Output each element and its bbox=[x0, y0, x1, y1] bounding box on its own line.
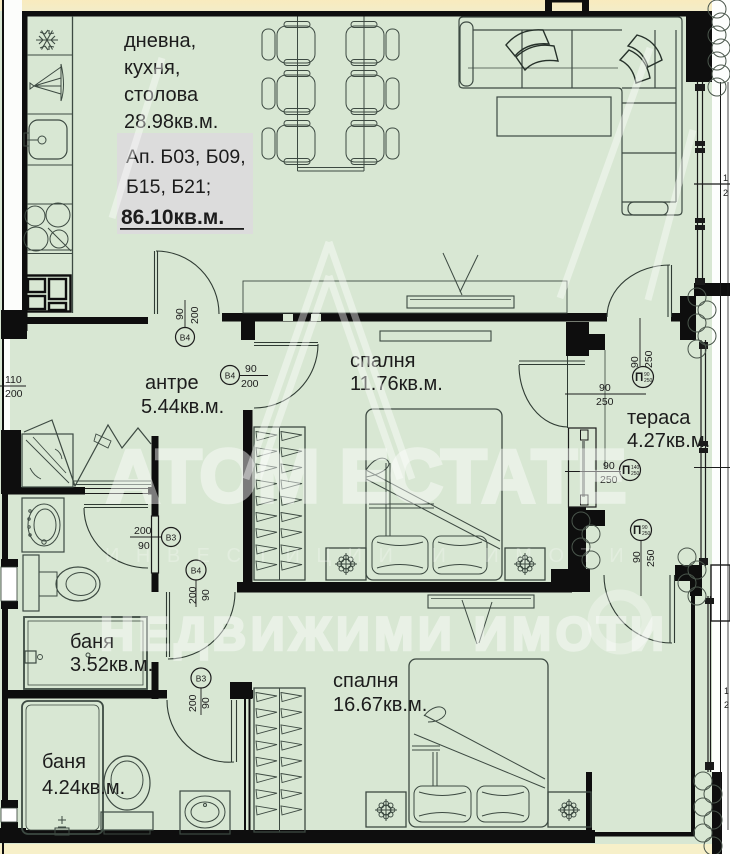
svg-text:86.10кв.м.: 86.10кв.м. bbox=[121, 206, 224, 229]
svg-text:столова: столова bbox=[124, 84, 199, 106]
svg-text:П: П bbox=[633, 525, 641, 537]
svg-text:Ап. Б03, Б09,: Ап. Б03, Б09, bbox=[126, 146, 246, 168]
svg-text:2: 2 bbox=[724, 700, 729, 710]
svg-text:2: 2 bbox=[723, 188, 728, 198]
svg-text:250: 250 bbox=[645, 549, 657, 567]
svg-text:200: 200 bbox=[241, 378, 259, 390]
svg-text:В4: В4 bbox=[191, 566, 202, 576]
svg-text:баня: баня bbox=[42, 751, 86, 773]
svg-text:200: 200 bbox=[5, 388, 23, 400]
svg-text:Б15, Б21;: Б15, Б21; bbox=[126, 176, 211, 198]
svg-text:90: 90 bbox=[245, 363, 257, 375]
svg-text:4.27кв.м.: 4.27кв.м. bbox=[627, 430, 710, 452]
svg-text:антре: антре bbox=[145, 372, 199, 394]
svg-text:200: 200 bbox=[187, 694, 199, 712]
svg-text:250: 250 bbox=[642, 531, 651, 537]
svg-text:90: 90 bbox=[599, 382, 611, 394]
svg-text:250: 250 bbox=[643, 350, 655, 368]
svg-text:200: 200 bbox=[134, 525, 152, 537]
svg-text:1: 1 bbox=[723, 173, 728, 183]
svg-text:16.67кв.м.: 16.67кв.м. bbox=[333, 694, 427, 716]
svg-text:В3: В3 bbox=[196, 674, 207, 684]
svg-text:дневна,: дневна, bbox=[124, 30, 196, 52]
svg-text:250: 250 bbox=[644, 378, 653, 384]
svg-text:4.24кв.м.: 4.24кв.м. bbox=[42, 777, 125, 799]
svg-text:110: 110 bbox=[5, 374, 22, 386]
svg-text:90: 90 bbox=[200, 589, 212, 601]
svg-text:1: 1 bbox=[724, 686, 729, 696]
svg-text:200: 200 bbox=[187, 586, 199, 604]
svg-text:В4: В4 bbox=[180, 333, 191, 343]
svg-text:ИНВЕСТИЦИИ И ИМОТИ: ИНВЕСТИЦИИ И ИМОТИ bbox=[105, 545, 640, 567]
svg-text:90: 90 bbox=[200, 697, 212, 709]
svg-text:АТОМ ЕСТАТЕ: АТОМ ЕСТАТЕ bbox=[106, 434, 626, 518]
svg-text:В4: В4 bbox=[225, 371, 236, 381]
svg-text:5.44кв.м.: 5.44кв.м. bbox=[141, 396, 224, 418]
svg-text:90: 90 bbox=[629, 356, 641, 368]
svg-text:тераса: тераса bbox=[627, 407, 691, 429]
svg-text:250: 250 bbox=[631, 471, 640, 477]
svg-text:250: 250 bbox=[596, 396, 614, 408]
svg-text:200: 200 bbox=[189, 306, 201, 324]
svg-text:НЕДВИЖИМИ ИМОТИ: НЕДВИЖИМИ ИМОТИ bbox=[100, 607, 668, 660]
svg-text:П: П bbox=[635, 372, 643, 384]
svg-text:спалня: спалня bbox=[333, 670, 399, 692]
svg-text:кухня,: кухня, bbox=[124, 57, 180, 79]
svg-text:В3: В3 bbox=[166, 533, 177, 543]
svg-text:90: 90 bbox=[174, 308, 186, 320]
